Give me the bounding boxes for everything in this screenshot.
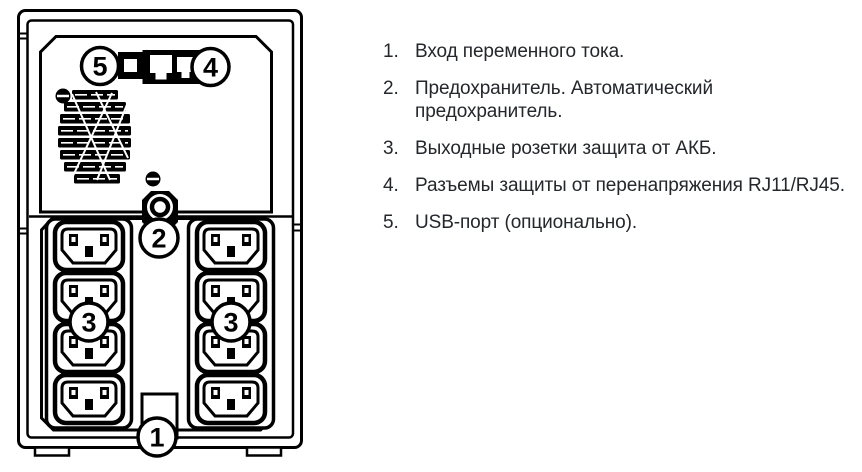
legend-item-number: 1. [383,40,407,63]
svg-text:5: 5 [92,52,107,82]
outlet-socket [55,222,123,270]
svg-text:1: 1 [149,423,164,453]
screw-icon [56,89,71,104]
manual-page: 5 4 2 [0,0,862,472]
legend-item-number: 5. [383,211,407,234]
legend-item-4: 4. Разъемы защиты от перенапряжения RJ11… [383,174,855,197]
outlet-socket [197,222,265,270]
legend-item-number: 2. [383,77,407,123]
callout-outlets-right: 3 [212,303,250,341]
outlet-socket [197,375,265,423]
svg-text:3: 3 [81,308,96,338]
legend-list: 1. Вход переменного тока. 2. Предохранит… [383,40,855,248]
legend-item-text: Предохранитель. Автоматический предохран… [415,77,713,123]
legend-item-text: Выходные розетки защита от АКБ. [415,137,717,160]
legend-item-5: 5. USB-порт (опционально). [383,211,855,234]
legend-item-text: USB-порт (опционально). [415,211,637,234]
legend-item-text: Вход переменного тока. [415,40,624,63]
legend-item-number: 3. [383,137,407,160]
legend-item-number: 4. [383,174,407,197]
callout-rj-protection: 4 [192,49,229,86]
legend-item-3: 3. Выходные розетки защита от АКБ. [383,137,855,160]
callout-outlets-left: 3 [70,303,108,341]
callout-fuse: 2 [140,219,178,257]
usb-port [118,52,143,79]
outlet-socket [55,375,123,423]
svg-text:3: 3 [223,308,238,338]
legend-item-1: 1. Вход переменного тока. [383,40,855,63]
legend-item-text: Разъемы защиты от перенапряжения RJ11/RJ… [415,174,845,197]
screw-icon [146,172,161,187]
callout-ac-input: 1 [138,418,176,456]
svg-text:4: 4 [203,53,218,83]
svg-text:2: 2 [151,224,166,254]
legend-item-2: 2. Предохранитель. Автоматический предох… [383,77,855,123]
ups-rear-panel-diagram: 5 4 2 [0,0,330,472]
callout-usb-port: 5 [82,48,119,85]
